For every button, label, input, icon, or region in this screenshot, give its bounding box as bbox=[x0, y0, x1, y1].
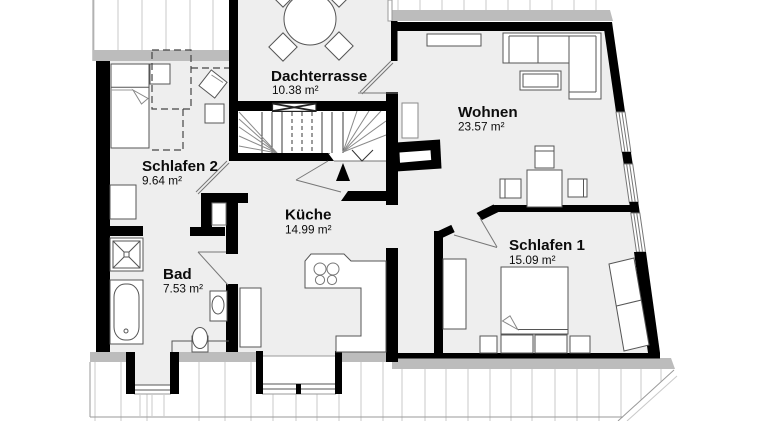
svg-text:10.38 m²: 10.38 m² bbox=[272, 83, 319, 97]
svg-text:9.64 m²: 9.64 m² bbox=[142, 174, 182, 188]
svg-text:14.99 m²: 14.99 m² bbox=[285, 223, 332, 237]
svg-text:23.57 m²: 23.57 m² bbox=[458, 120, 505, 134]
svg-text:Schlafen 1: Schlafen 1 bbox=[509, 237, 586, 254]
svg-text:Schlafen 2: Schlafen 2 bbox=[142, 158, 218, 175]
svg-text:7.53 m²: 7.53 m² bbox=[163, 282, 203, 296]
svg-text:Küche: Küche bbox=[285, 207, 331, 224]
svg-text:15.09 m²: 15.09 m² bbox=[509, 253, 556, 267]
svg-text:Bad: Bad bbox=[163, 266, 192, 283]
svg-text:Wohnen: Wohnen bbox=[458, 104, 518, 121]
